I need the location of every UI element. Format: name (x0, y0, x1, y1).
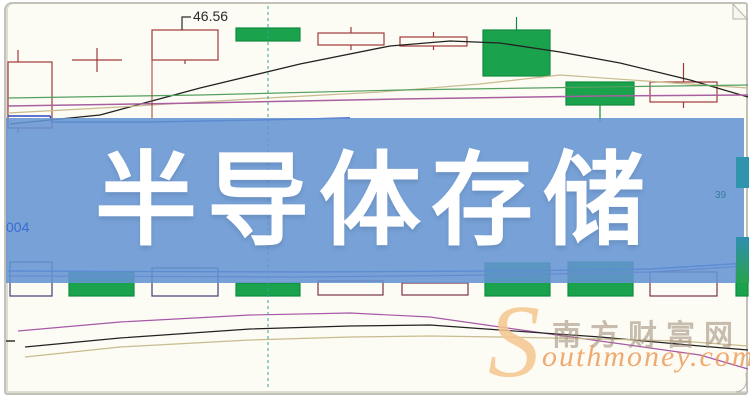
page-curl-bottom-right-icon (736, 373, 747, 392)
ma-tan-top (8, 75, 748, 113)
candle-body (236, 28, 300, 41)
banner-title: 半导体存储 (95, 150, 655, 252)
candle-body (483, 30, 550, 76)
price-annotation: 46.56 (193, 8, 228, 24)
candle-body (152, 30, 218, 60)
ma-black-top (10, 41, 748, 124)
price-annotation-leader (182, 17, 191, 30)
edge-candle-bar (736, 157, 749, 188)
left-axis-label: 004 (6, 219, 29, 235)
candle-body (402, 283, 468, 295)
edge-candle-bar (736, 237, 749, 283)
candle-body (318, 281, 383, 295)
candle-body (566, 82, 634, 105)
page-fold-top-right-icon (733, 4, 747, 19)
candle-body (318, 33, 384, 45)
screenshot-stage: 46.56 半导体存储 004 39 S 南方财富网 outhmoney.com (0, 0, 750, 400)
right-axis-label: 39 (715, 190, 726, 201)
headline-banner: 半导体存储 (6, 118, 744, 283)
